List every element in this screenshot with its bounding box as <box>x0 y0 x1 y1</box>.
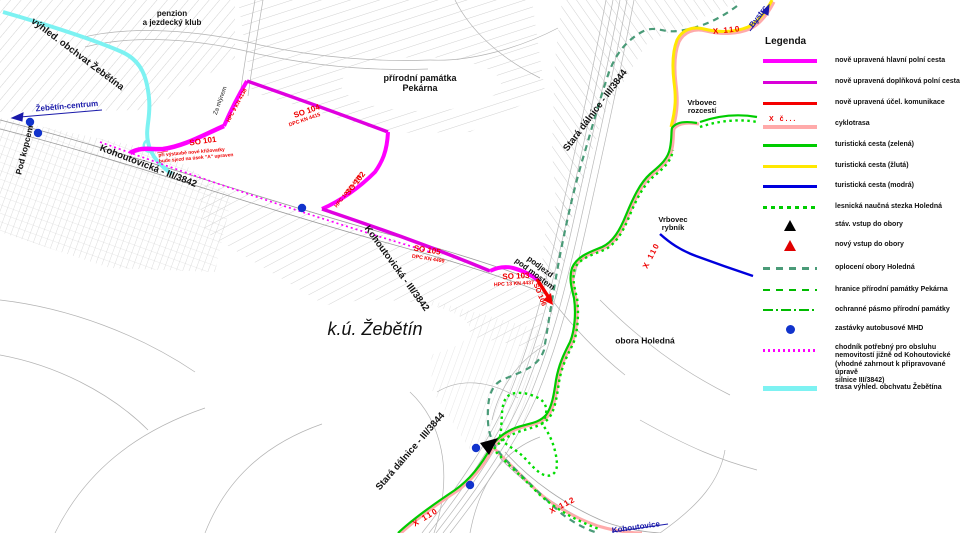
legend-swatch-dotted-magenta <box>763 349 817 352</box>
label-vrbovec-rybnik: Vrbovec rybník <box>658 216 687 233</box>
legend-label: oplocení obory Holedná <box>835 264 915 272</box>
legend-swatch-dashed-teal <box>763 267 817 270</box>
legend-row: stáv. vstup do obory <box>763 220 968 231</box>
legend-swatch-dotted-green <box>763 206 817 209</box>
legend-label: stáv. vstup do obory <box>835 221 903 229</box>
legend-row: turistická cesta (zelená) <box>763 141 968 149</box>
legend-row: nový vstup do obory <box>763 240 968 251</box>
legend-swatch-cyclo: X č... <box>763 118 817 130</box>
legend-label: chodník potřebný pro obsluhu nemovitostí… <box>835 344 968 385</box>
legend-label: turistická cesta (modrá) <box>835 182 914 190</box>
legend-row: chodník potřebný pro obsluhu nemovitostí… <box>763 344 968 385</box>
route-tourist-blue <box>660 234 753 276</box>
legend-swatch-magenta-thick <box>763 59 817 63</box>
label-pekarna: přírodní památka Pekárna <box>383 74 456 94</box>
legend-row: X č... cyklotrasa <box>763 118 968 130</box>
legend-label: nově upravená účel. komunikace <box>835 99 945 107</box>
legend-label: zastávky autobusové MHD <box>835 325 923 333</box>
legend-label: ochranné pásmo přírodní památky <box>835 306 950 314</box>
legend-label: nový vstup do obory <box>835 241 904 249</box>
legend-swatch-cyan <box>763 386 817 391</box>
legend-swatch-red <box>763 102 817 105</box>
legend-label: lesnická naučná stezka Holedná <box>835 203 942 211</box>
legend-label: turistická cesta (žlutá) <box>835 162 909 170</box>
legend-row: zastávky autobusové MHD <box>763 325 968 334</box>
legend-swatch-yellow <box>763 165 817 168</box>
label-obora-holedna: obora Holedná <box>615 336 675 345</box>
legend-row: turistická cesta (žlutá) <box>763 162 968 170</box>
legend-label: nově upravená doplňková polní cesta <box>835 78 960 86</box>
legend-row: hranice přírodní památky Pekárna <box>763 286 968 294</box>
legend-row: lesnická naučná stezka Holedná <box>763 203 968 211</box>
legend-row: trasa výhled. obchvatu Žebětína <box>763 384 968 392</box>
legend-swatch-blue-dot <box>786 325 795 334</box>
legend-label: trasa výhled. obchvatu Žebětína <box>835 384 942 392</box>
legend-label: hranice přírodní památky Pekárna <box>835 286 948 294</box>
route-so102 <box>322 132 388 209</box>
legend-swatch-black-triangle <box>784 220 796 231</box>
label-ku-zebetin: k.ú. Žebětín <box>327 320 422 340</box>
legend-swatch-red-triangle <box>784 240 796 251</box>
legend-row: ochranné pásmo přírodní památky <box>763 306 968 314</box>
legend-row: oplocení obory Holedná <box>763 264 968 272</box>
cyclo-band <box>763 125 817 129</box>
label-vrbovec-rozcesti: Vrbovec rozcestí <box>687 99 716 116</box>
legend-row: nově upravená doplňková polní cesta <box>763 78 968 86</box>
legend-swatch-dashed-green <box>763 289 817 291</box>
legend-label: cyklotrasa <box>835 120 870 128</box>
legend-row: nově upravená účel. komunikace <box>763 99 968 107</box>
legend-row: nově upravená hlavní polní cesta <box>763 57 968 65</box>
legend-label: nově upravená hlavní polní cesta <box>835 57 945 65</box>
legend-swatch-blue <box>763 185 817 188</box>
legend-swatch-magenta <box>763 81 817 84</box>
legend-swatch-dashdot-green <box>763 309 817 311</box>
cyclo-mark: X č... <box>769 116 797 123</box>
legend-label: turistická cesta (zelená) <box>835 141 914 149</box>
label-penzion: penzion a jezdecký klub <box>143 10 202 28</box>
legend-title: Legenda <box>765 36 806 47</box>
legend-row: turistická cesta (modrá) <box>763 182 968 190</box>
legend-swatch-green <box>763 144 817 147</box>
map-sheet: výhled. obchvat Žebětína Žebětín-centrum… <box>0 0 970 533</box>
